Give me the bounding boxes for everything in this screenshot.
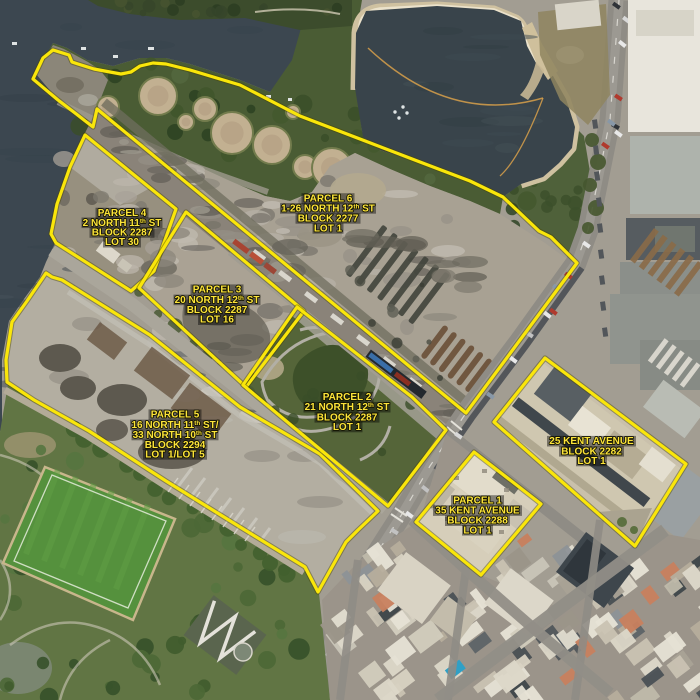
- svg-text:LOT 1: LOT 1: [577, 456, 606, 467]
- svg-text:LOT 1: LOT 1: [333, 422, 362, 433]
- svg-text:LOT 1: LOT 1: [314, 223, 343, 234]
- svg-text:LOT 30: LOT 30: [105, 237, 139, 248]
- svg-text:LOT 1/LOT 5: LOT 1/LOT 5: [145, 449, 205, 460]
- svg-text:LOT 1: LOT 1: [463, 525, 492, 536]
- svg-text:LOT 16: LOT 16: [200, 315, 234, 326]
